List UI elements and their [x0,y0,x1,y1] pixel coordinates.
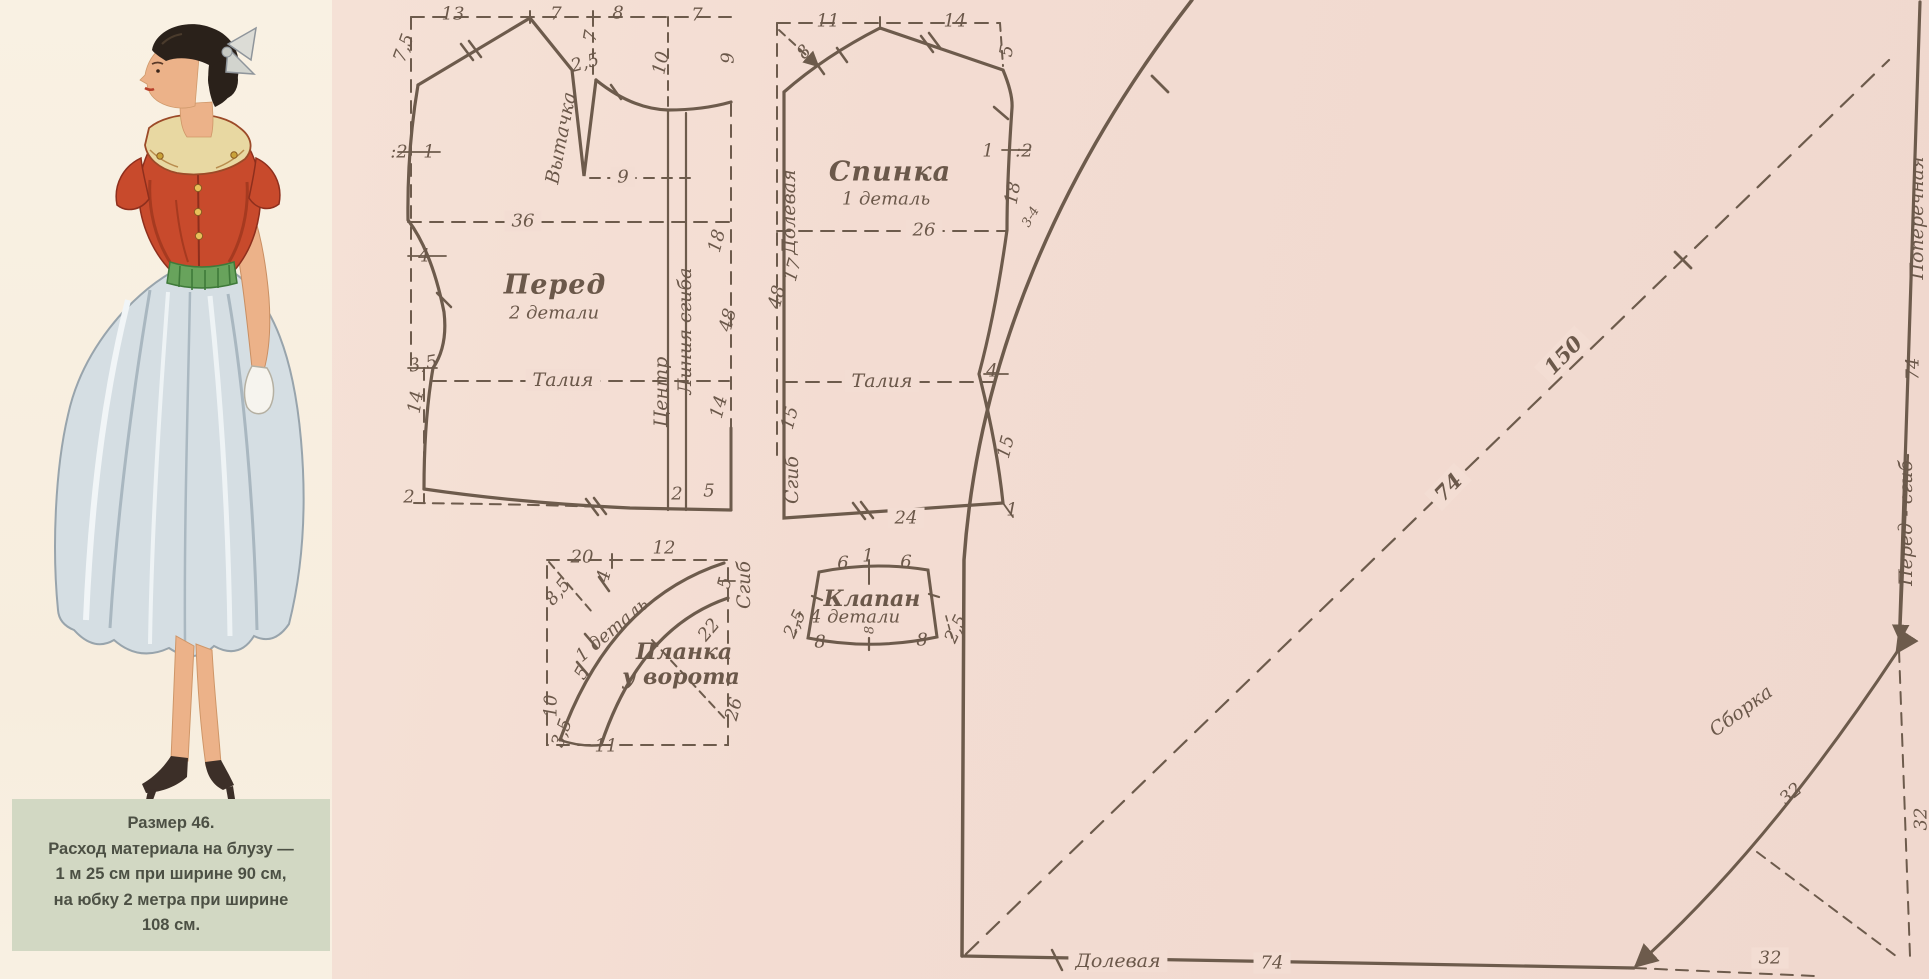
back-piece-outline [777,17,1030,519]
pattern-sheet-page: Размер 46. Расход материала на блузу — 1… [0,0,1929,979]
flap-piece-outline [795,560,952,650]
front-piece-outline [398,11,731,515]
pattern-drawing [0,0,1929,979]
skirt-piece-outline [962,0,1920,976]
placket-piece-outline [547,554,735,745]
